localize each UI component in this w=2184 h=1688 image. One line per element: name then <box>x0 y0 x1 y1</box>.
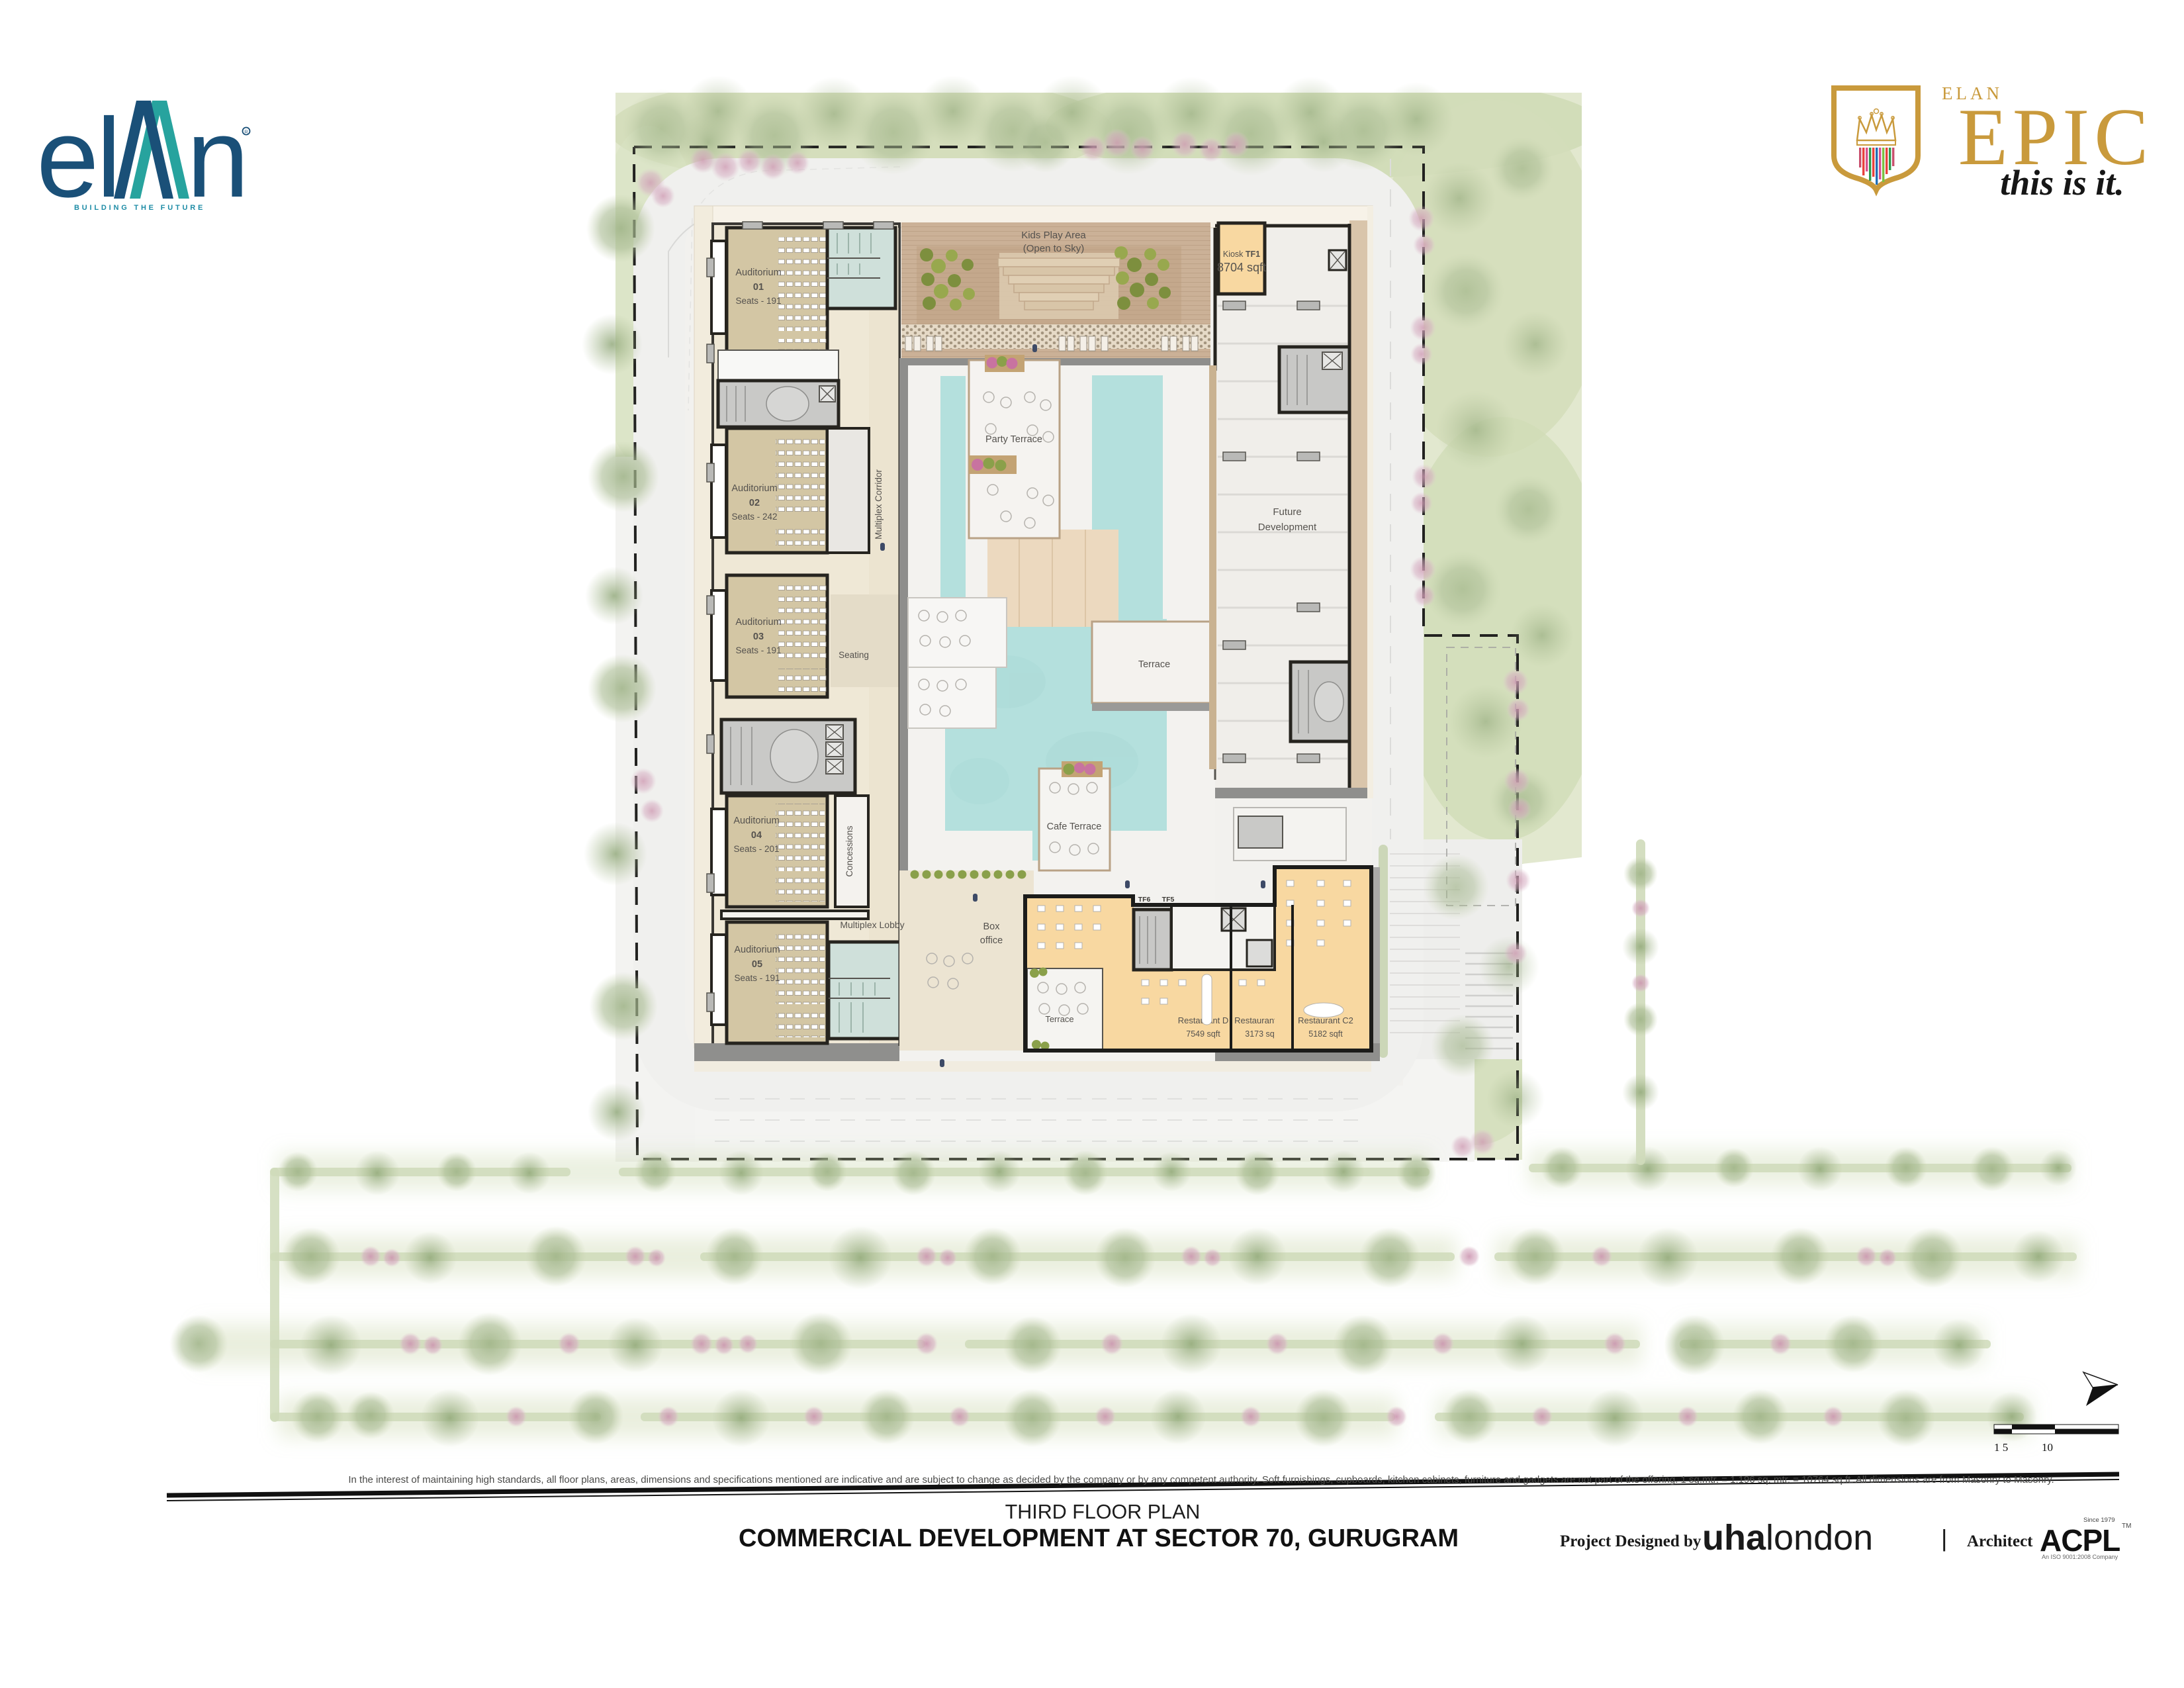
svg-text:el: el <box>36 95 118 221</box>
svg-text:Multiplex Lobby: Multiplex Lobby <box>840 919 904 930</box>
svg-text:Future: Future <box>1273 506 1301 518</box>
svg-text:Development: Development <box>1258 522 1317 533</box>
svg-text:In the interest of maintaining: In the interest of maintaining high stan… <box>348 1474 2054 1485</box>
svg-text:Seats - 191: Seats - 191 <box>734 973 780 983</box>
svg-text:Auditorium: Auditorium <box>735 267 781 278</box>
svg-text:THIRD FLOOR PLAN: THIRD FLOOR PLAN <box>1005 1501 1201 1523</box>
svg-text:TM: TM <box>2122 1523 2131 1530</box>
svg-text:Auditorium: Auditorium <box>733 816 779 826</box>
svg-text:COMMERCIAL DEVELOPMENT AT SECT: COMMERCIAL DEVELOPMENT AT SECTOR 70, GUR… <box>739 1524 1459 1552</box>
svg-text:Auditorium: Auditorium <box>734 945 780 955</box>
svg-text:BUILDING THE FUTURE: BUILDING THE FUTURE <box>74 204 205 212</box>
svg-text:|: | <box>1941 1524 1947 1552</box>
svg-text:Auditorium: Auditorium <box>731 483 777 494</box>
svg-text:03: 03 <box>753 632 764 642</box>
svg-text:Seats - 201: Seats - 201 <box>733 844 779 854</box>
svg-text:R: R <box>244 129 248 135</box>
svg-text:01: 01 <box>753 282 764 293</box>
svg-text:7549 sqft: 7549 sqft <box>1186 1029 1220 1039</box>
svg-text:1 5: 1 5 <box>1994 1441 2008 1454</box>
svg-text:Seats - 191: Seats - 191 <box>735 645 781 655</box>
svg-text:Multiplex Corridor: Multiplex Corridor <box>874 469 884 539</box>
svg-text:Auditorium: Auditorium <box>735 617 781 628</box>
svg-text:Cafe Terrace: Cafe Terrace <box>1047 821 1102 832</box>
svg-text:ACPL: ACPL <box>2040 1523 2120 1558</box>
svg-text:(Open to Sky): (Open to Sky) <box>1023 243 1085 254</box>
svg-text:this is it.: this is it. <box>2000 163 2124 203</box>
svg-text:An ISO 9001:2008 Company: An ISO 9001:2008 Company <box>2042 1554 2118 1560</box>
svg-text:8704 sqft: 8704 sqft <box>1217 261 1266 274</box>
svg-text:Terrace: Terrace <box>1138 659 1170 670</box>
svg-text:02: 02 <box>749 498 760 508</box>
svg-text:office: office <box>980 935 1003 946</box>
svg-text:Architect: Architect <box>1967 1532 2033 1550</box>
svg-text:TF6: TF6 <box>1138 896 1151 904</box>
svg-text:Seats - 242: Seats - 242 <box>731 512 777 522</box>
svg-text:n: n <box>187 95 250 221</box>
svg-text:Kiosk TF1: Kiosk TF1 <box>1223 250 1260 259</box>
svg-text:04: 04 <box>751 830 762 841</box>
svg-text:Seats - 191: Seats - 191 <box>735 296 781 306</box>
svg-text:10: 10 <box>2042 1441 2053 1454</box>
svg-text:Terrace: Terrace <box>1045 1014 1073 1024</box>
svg-text:TF5: TF5 <box>1162 896 1175 904</box>
svg-text:Project Designed by: Project Designed by <box>1560 1532 1702 1550</box>
svg-text:Concessions: Concessions <box>844 825 854 877</box>
svg-text:Box: Box <box>983 921 1001 932</box>
svg-text:3173 sqft: 3173 sqft <box>1245 1029 1279 1039</box>
svg-text:Since 1979: Since 1979 <box>2083 1517 2115 1524</box>
svg-text:uhalondon: uhalondon <box>1702 1518 1873 1558</box>
svg-text:Kids Play Area: Kids Play Area <box>1021 230 1086 241</box>
svg-text:05: 05 <box>752 959 762 970</box>
svg-text:Seating: Seating <box>839 650 869 660</box>
svg-text:5182 sqft: 5182 sqft <box>1308 1029 1343 1039</box>
